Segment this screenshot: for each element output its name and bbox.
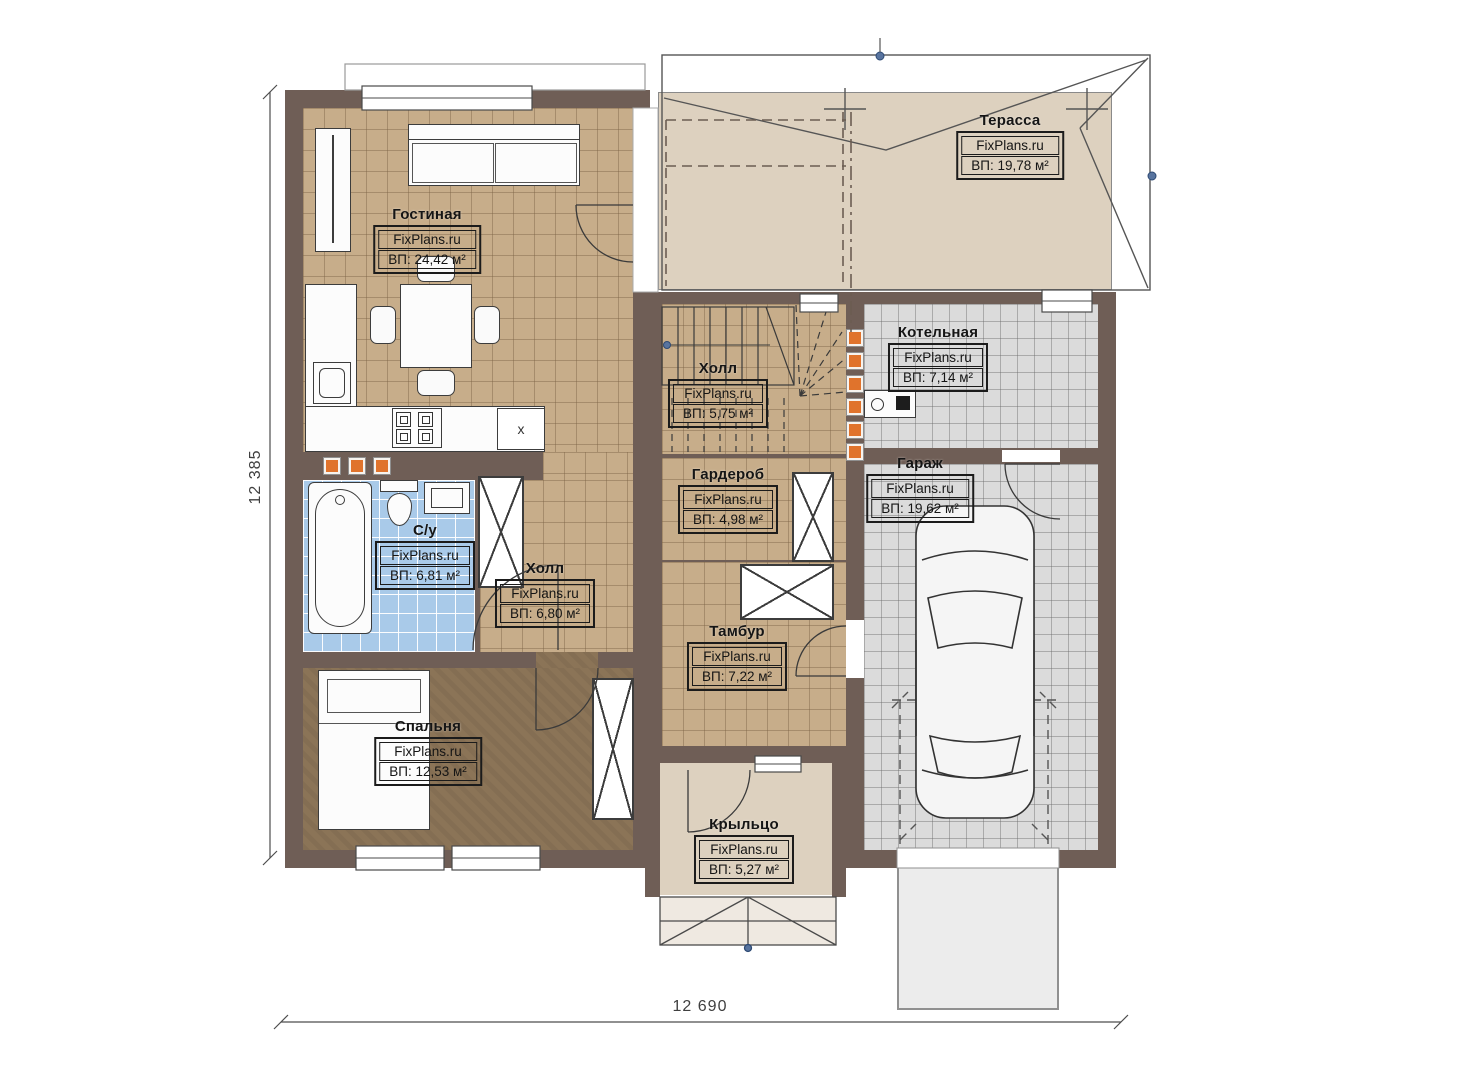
stove	[392, 408, 442, 448]
washbasin-inner	[431, 488, 463, 508]
bathtub-drain	[335, 495, 345, 505]
bathtub	[308, 482, 372, 634]
room-label-boiler-room: Котельная FixPlans.ru ВП: 7,14 м²	[888, 324, 988, 392]
room-name: Холл	[526, 560, 564, 577]
area-text: ВП: 5,75 м²	[673, 404, 763, 423]
dimension-bottom: 12 690	[640, 998, 760, 1016]
chair	[417, 370, 455, 396]
room-info-box: FixPlans.ru ВП: 6,81 м²	[375, 541, 475, 590]
opening-hall-to-bedroom	[536, 652, 598, 668]
room-name: Тамбур	[709, 623, 765, 640]
room-info-box: FixPlans.ru ВП: 5,75 м²	[668, 379, 768, 428]
chair	[370, 306, 396, 344]
toilet-tank	[380, 480, 418, 492]
room-name: Крыльцо	[709, 816, 779, 833]
accent-square	[847, 376, 863, 392]
sink-bowl	[319, 368, 345, 398]
kitchen-sink	[313, 362, 351, 404]
room-label-bathroom: С/у FixPlans.ru ВП: 6,81 м²	[375, 522, 475, 590]
brand-text: FixPlans.ru	[500, 584, 590, 603]
burner	[396, 429, 411, 444]
washbasin	[424, 482, 470, 514]
room-name: Спальня	[395, 718, 461, 735]
area-text: ВП: 5,27 м²	[699, 860, 789, 879]
room-name: Терасса	[980, 112, 1041, 129]
brand-text: FixPlans.ru	[380, 546, 470, 565]
room-label-stair-hall: Холл FixPlans.ru ВП: 5,75 м²	[668, 360, 768, 428]
area-text: ВП: 24,42 м²	[378, 250, 476, 269]
room-info-box: FixPlans.ru ВП: 19,62 м²	[866, 474, 974, 523]
accent-square	[847, 353, 863, 369]
roof-marker-dot	[1148, 172, 1156, 180]
opening-living-to-hall	[543, 452, 633, 480]
room-label-porch: Крыльцо FixPlans.ru ВП: 5,27 м²	[694, 816, 794, 884]
room-label-garage: Гараж FixPlans.ru ВП: 19,62 м²	[866, 455, 974, 523]
room-name: Котельная	[898, 324, 978, 341]
room-name: Гараж	[897, 455, 943, 472]
accent-square	[847, 444, 863, 460]
burner	[418, 429, 433, 444]
room-name: Холл	[699, 360, 737, 377]
brand-text: FixPlans.ru	[379, 742, 477, 761]
room-label-living-room: Гостиная FixPlans.ru ВП: 24,42 м²	[373, 206, 481, 274]
boiler-unit	[864, 390, 916, 418]
area-text: ВП: 6,80 м²	[500, 604, 590, 623]
bed-pillow	[327, 679, 421, 713]
porch-steps	[660, 897, 836, 952]
room-label-terrace: Терасса FixPlans.ru ВП: 19,78 м²	[956, 112, 1064, 180]
area-text: ВП: 19,62 м²	[871, 499, 969, 518]
room-info-box: FixPlans.ru ВП: 19,78 м²	[956, 131, 1064, 180]
bathtub-inner	[315, 489, 365, 627]
roof-marker-dot	[876, 52, 884, 60]
area-text: ВП: 4,98 м²	[683, 510, 773, 529]
cabinet-line	[332, 135, 334, 243]
dining-table	[400, 284, 472, 368]
burner	[396, 412, 411, 427]
brand-text: FixPlans.ru	[699, 840, 789, 859]
sofa-cushion	[495, 143, 577, 183]
accent-square	[324, 458, 340, 474]
area-text: ВП: 7,14 м²	[893, 368, 983, 387]
room-label-bedroom: Спальня FixPlans.ru ВП: 12,53 м²	[374, 718, 482, 786]
brand-text: FixPlans.ru	[893, 348, 983, 367]
room-label-vestibule: Тамбур FixPlans.ru ВП: 7,22 м²	[687, 623, 787, 691]
room-label-hall: Холл FixPlans.ru ВП: 6,80 м²	[495, 560, 595, 628]
sofa-back	[409, 125, 579, 140]
sofa	[408, 124, 580, 186]
accent-square	[847, 422, 863, 438]
accent-square	[349, 458, 365, 474]
radiator-cabinet	[315, 128, 351, 252]
room-info-box: FixPlans.ru ВП: 5,27 м²	[694, 835, 794, 884]
brand-text: FixPlans.ru	[378, 230, 476, 249]
room-name: С/у	[413, 522, 437, 539]
porch-wall-left-stub	[645, 868, 660, 897]
room-label-wardrobe-room: Гардероб FixPlans.ru ВП: 4,98 м²	[678, 466, 778, 534]
accent-square	[847, 399, 863, 415]
brand-text: FixPlans.ru	[683, 490, 773, 509]
room-info-box: FixPlans.ru ВП: 12,53 м²	[374, 737, 482, 786]
dishwasher-x-mark: x	[497, 408, 545, 450]
brand-text: FixPlans.ru	[692, 647, 782, 666]
burner	[418, 412, 433, 427]
floor-plan-canvas: x	[0, 0, 1473, 1080]
room-info-box: FixPlans.ru ВП: 7,14 м²	[888, 343, 988, 392]
area-text: ВП: 7,22 м²	[692, 667, 782, 686]
dimension-left: 12 385	[247, 437, 265, 517]
porch-wall-right-stub	[832, 868, 846, 897]
accent-square	[374, 458, 390, 474]
driveway	[897, 866, 1059, 1010]
room-info-box: FixPlans.ru ВП: 24,42 м²	[373, 225, 481, 274]
room-name: Гардероб	[692, 466, 765, 483]
wardrobe-cabinet	[792, 472, 834, 562]
room-info-box: FixPlans.ru ВП: 7,22 м²	[687, 642, 787, 691]
bedroom-wardrobe	[592, 678, 634, 820]
vestibule-cabinet	[740, 564, 834, 620]
brand-text: FixPlans.ru	[673, 384, 763, 403]
brand-text: FixPlans.ru	[961, 136, 1059, 155]
eaves-outline	[345, 64, 645, 90]
room-info-box: FixPlans.ru ВП: 6,80 м²	[495, 579, 595, 628]
area-text: ВП: 6,81 м²	[380, 566, 470, 585]
boiler-box	[896, 396, 910, 410]
room-info-box: FixPlans.ru ВП: 4,98 м²	[678, 485, 778, 534]
sofa-cushion	[412, 143, 494, 183]
area-text: ВП: 12,53 м²	[379, 762, 477, 781]
area-text: ВП: 19,78 м²	[961, 156, 1059, 175]
boiler-dial	[871, 398, 884, 411]
accent-square	[847, 330, 863, 346]
chair	[474, 306, 500, 344]
brand-text: FixPlans.ru	[871, 479, 969, 498]
room-name: Гостиная	[392, 206, 461, 223]
